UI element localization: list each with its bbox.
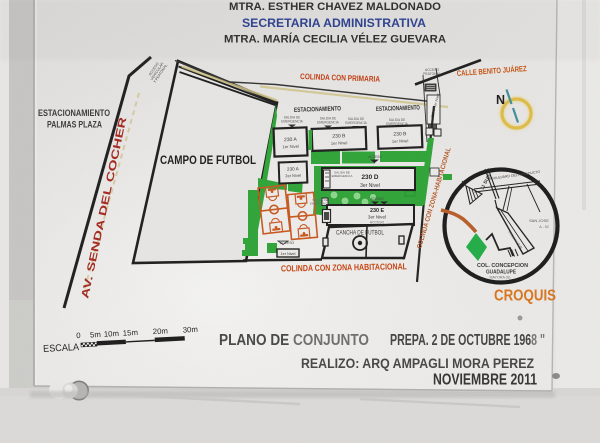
svg-text:230 E: 230 E — [370, 208, 384, 214]
svg-text:ACCESO: ACCESO — [370, 197, 384, 201]
svg-text:N: N — [496, 93, 505, 107]
svg-text:PREPA. 2 DE OCTUBRE 1968 ": PREPA. 2 DE OCTUBRE 1968 " — [390, 332, 545, 349]
svg-text:5m: 5m — [90, 330, 101, 340]
svg-text:1er Nivel: 1er Nivel — [392, 138, 409, 144]
svg-text:1er Nivel: 1er Nivel — [282, 144, 299, 150]
svg-text:230 A: 230 A — [284, 137, 298, 143]
svg-text:230 D: 230 D — [361, 174, 378, 181]
svg-text:EMERGENCIA: EMERGENCIA — [332, 174, 354, 178]
svg-text:10m: 10m — [104, 329, 120, 339]
svg-text:CROQUIS: CROQUIS — [494, 288, 556, 305]
svg-text:30m: 30m — [182, 325, 198, 335]
svg-text:PALMAS PLAZA: PALMAS PLAZA — [47, 120, 103, 130]
svg-text:15m: 15m — [123, 328, 139, 338]
svg-text:3er Nivel: 3er Nivel — [368, 215, 386, 220]
svg-text:230 A: 230 A — [287, 166, 300, 171]
svg-text:3er Nivel: 3er Nivel — [360, 183, 380, 189]
svg-text:NOVIEMBRE 2011: NOVIEMBRE 2011 — [433, 372, 537, 389]
svg-text:2er Nivel: 2er Nivel — [285, 173, 301, 179]
svg-text:A - 52: A - 52 — [539, 225, 548, 229]
svg-text:CAMPO DE FUTBOL: CAMPO DE FUTBOL — [160, 153, 256, 167]
svg-text:COL. CONCEPCION: COL. CONCEPCION — [477, 263, 528, 269]
svg-text:PLANO DE CONJUNTO: PLANO DE CONJUNTO — [219, 332, 369, 349]
svg-text:230 B: 230 B — [393, 131, 407, 137]
svg-text:ESTACIONAMIENTO: ESTACIONAMIENTO — [38, 108, 110, 118]
svg-text:EMERGENCIA: EMERGENCIA — [317, 121, 339, 125]
svg-text:ESCALA: ESCALA — [43, 342, 80, 355]
svg-text:SAN JOSE: SAN JOSE — [529, 218, 549, 223]
svg-text:1er Nivel: 1er Nivel — [331, 140, 348, 146]
svg-text:REALIZO: ARQ AMPAGLI MORA PERE: REALIZO: ARQ AMPAGLI MORA PEREZ — [301, 356, 534, 371]
svg-text:230 B: 230 B — [332, 133, 346, 139]
svg-text:ACCESO: ACCESO — [368, 155, 382, 159]
svg-text:PEATONAL: PEATONAL — [423, 72, 441, 76]
svg-text:20m: 20m — [153, 326, 169, 336]
svg-text:MAYORA (S): MAYORA (S) — [490, 276, 511, 280]
svg-text:EMERGENCIA: EMERGENCIA — [345, 121, 367, 125]
svg-text:EMERGENCIA: EMERGENCIA — [281, 120, 303, 124]
svg-text:1er Nivel: 1er Nivel — [281, 252, 296, 256]
svg-text:EMERGENCIA: EMERGENCIA — [310, 202, 330, 206]
